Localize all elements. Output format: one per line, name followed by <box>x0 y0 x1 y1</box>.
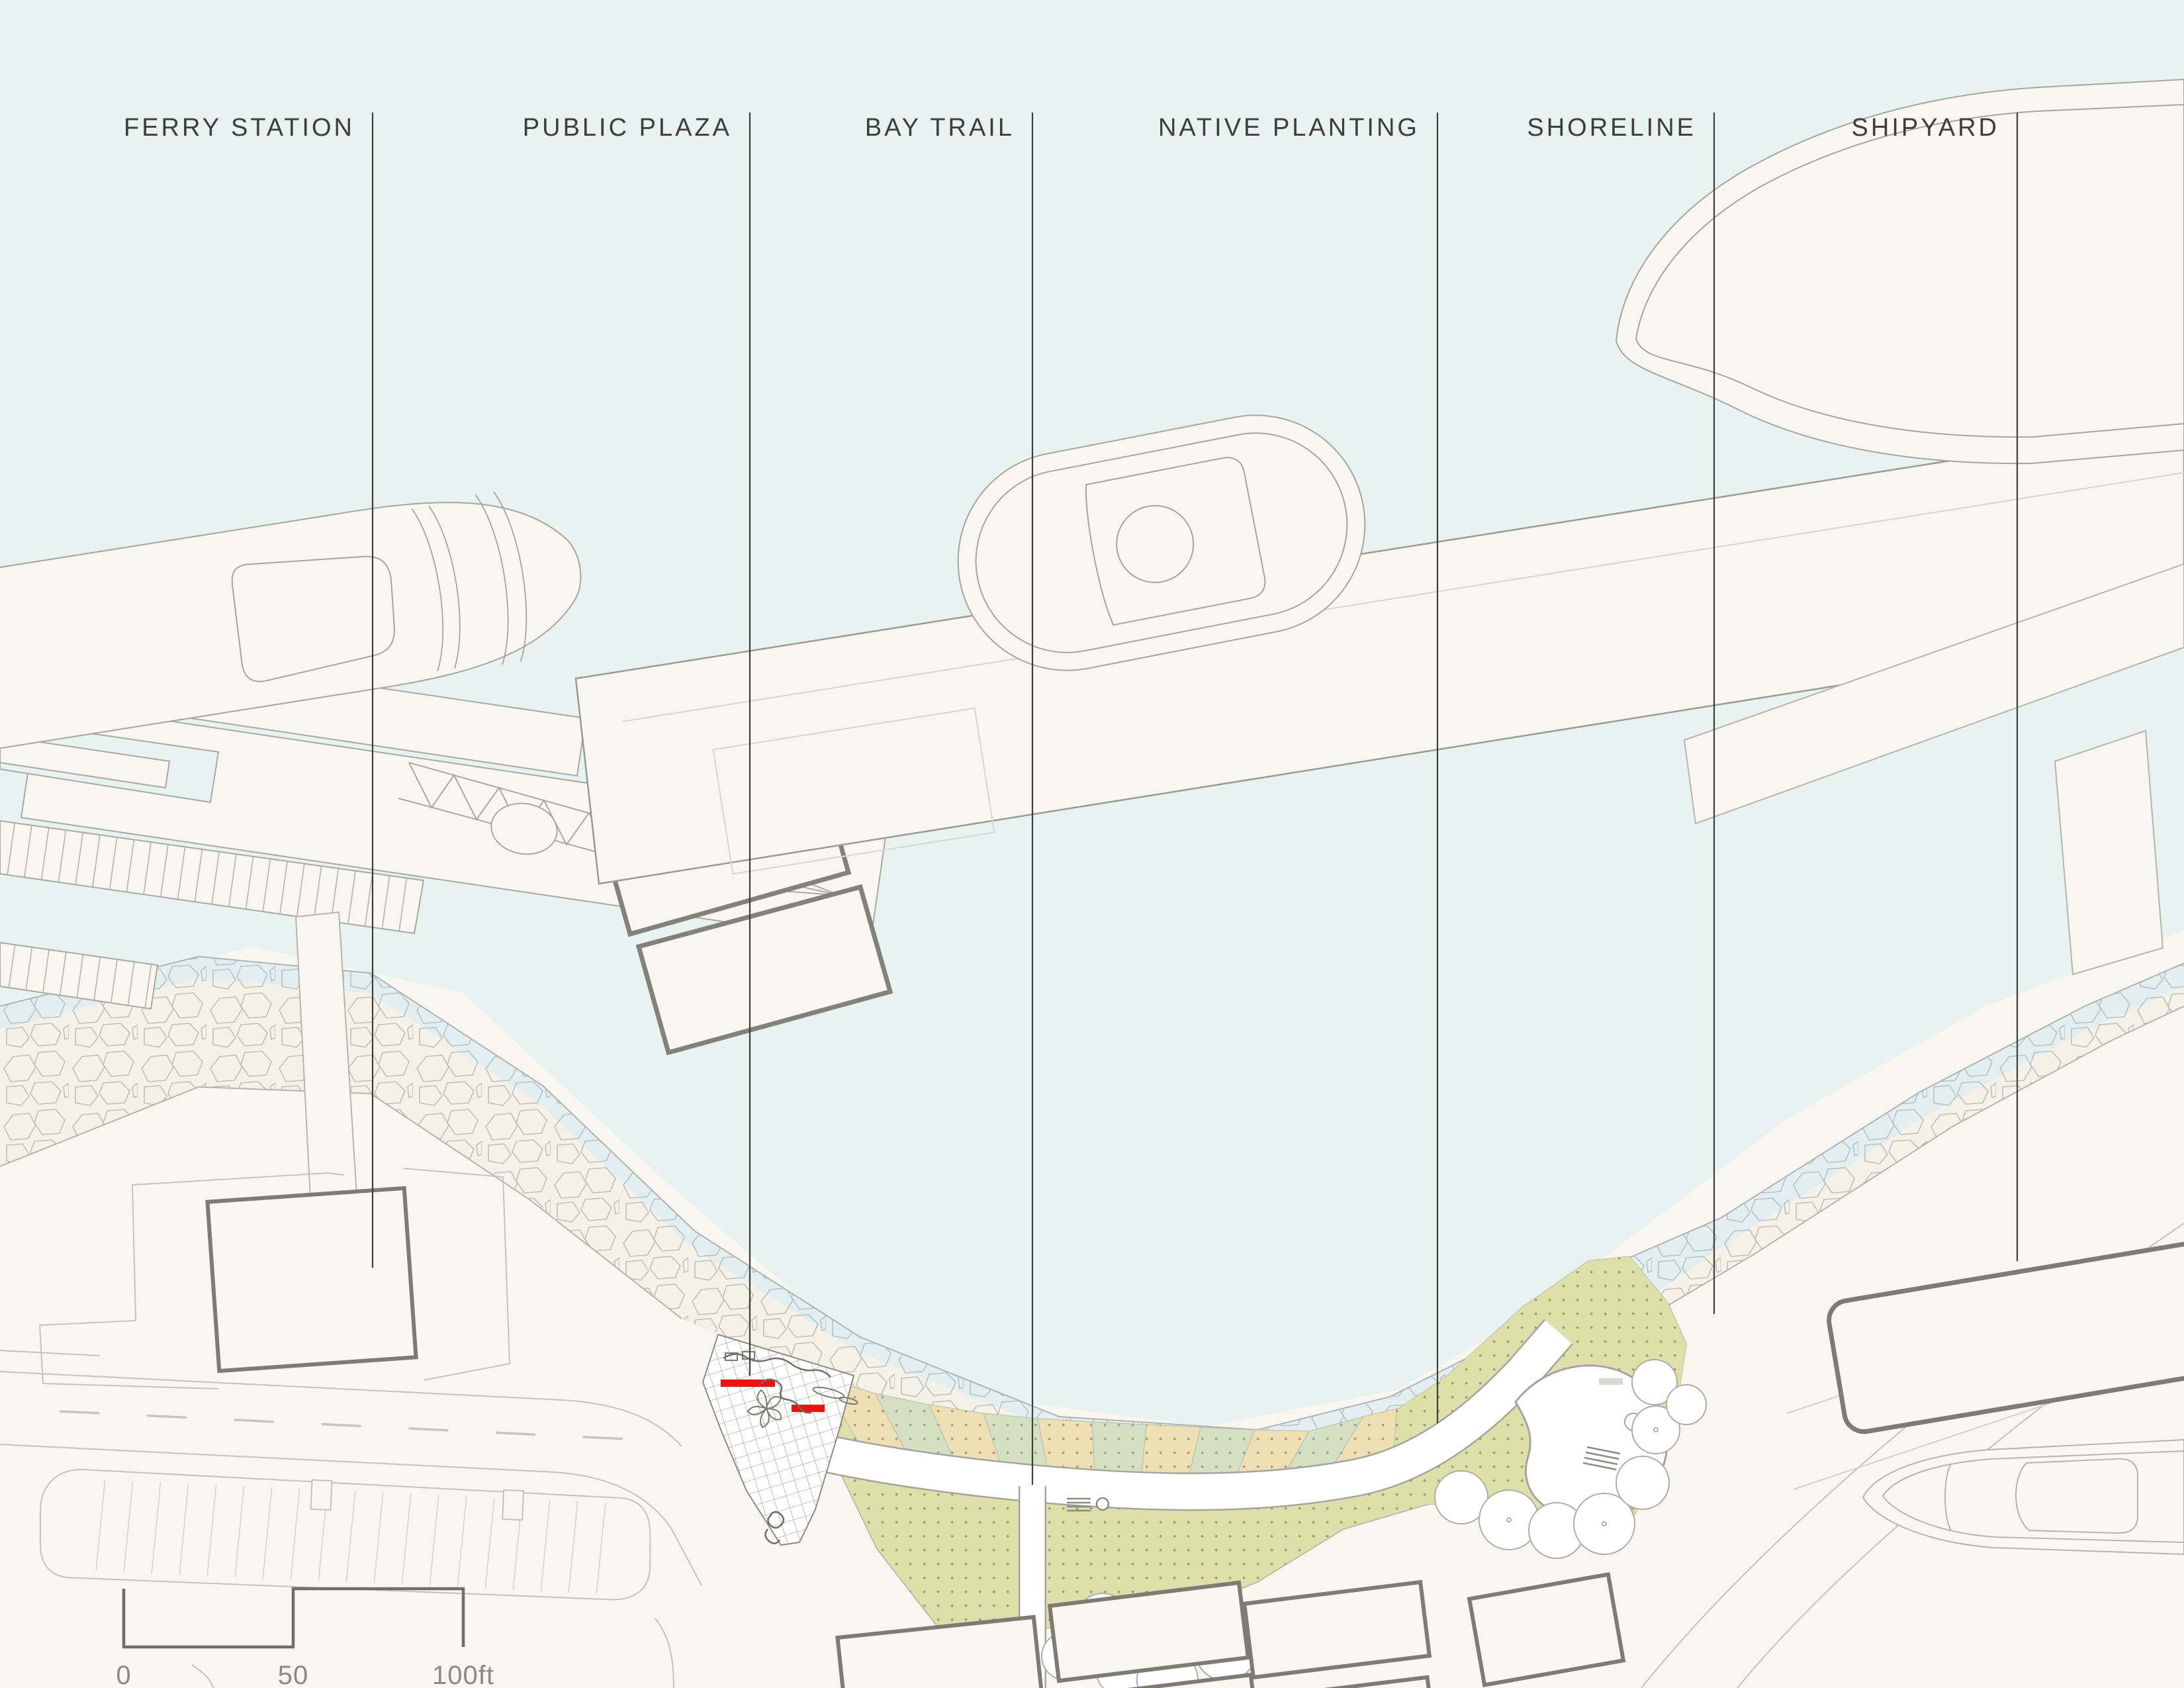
callout-public-plaza: PUBLIC PLAZA <box>523 114 732 142</box>
callout-bay-trail: BAY TRAIL <box>865 114 1015 142</box>
scale-fifty: 50 <box>278 1661 309 1688</box>
red-bench-2 <box>792 1405 825 1412</box>
finger-pier <box>2055 731 2163 974</box>
ferry-terminal-building <box>207 1188 416 1371</box>
callout-shipyard: SHIPYARD <box>1852 114 1999 142</box>
site-plan-drawing: FERRY STATION PUBLIC PLAZA BAY TRAIL NAT… <box>0 0 2184 1688</box>
scale-zero: 0 <box>116 1661 131 1688</box>
callout-native-planting: NATIVE PLANTING <box>1158 114 1420 142</box>
callout-shoreline: SHORELINE <box>1527 114 1696 142</box>
site-plan-canvas: FERRY STATION PUBLIC PLAZA BAY TRAIL NAT… <box>0 0 2184 1688</box>
callout-ferry-station: FERRY STATION <box>124 114 355 142</box>
scale-hundred: 100ft <box>432 1661 494 1688</box>
